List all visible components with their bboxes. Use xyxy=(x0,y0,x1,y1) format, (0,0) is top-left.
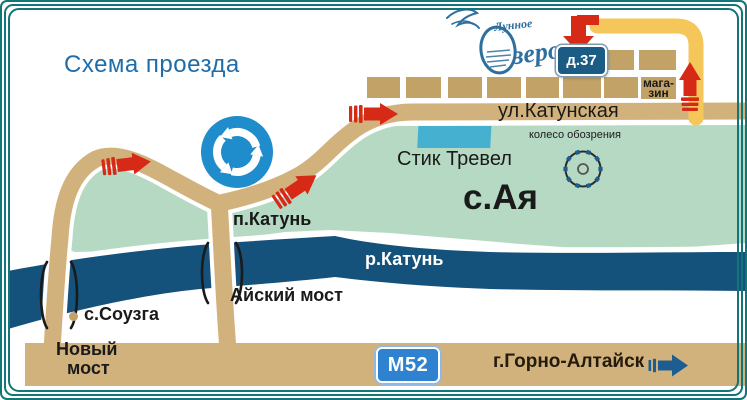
street-label: ул.Катунская xyxy=(498,100,619,123)
shop-label-line2: зин xyxy=(648,86,669,100)
m52-sign-text: М52 xyxy=(376,347,440,383)
logo-lake-lines xyxy=(486,50,511,67)
map-title: Схема проезда xyxy=(64,51,240,79)
city-label: г.Горно-Алтайск xyxy=(493,351,644,373)
stik-travel-label: Стик Тревел xyxy=(397,148,512,171)
logo-bird-icon xyxy=(447,10,479,28)
house-37-sign: д.37 xyxy=(556,45,607,76)
route-map: Схема проезда Лунное зеро д.37 ул.Катунс… xyxy=(0,0,747,400)
roundabout-sign-icon xyxy=(201,116,273,188)
new-bridge-label-line2: мост xyxy=(67,358,110,379)
aysky-bridge-label: Айский мост xyxy=(230,285,343,306)
souzga-dot xyxy=(69,312,78,321)
village-aya-label: с.Ая xyxy=(463,178,538,218)
road-aysky-most xyxy=(219,199,228,350)
m52-sign: М52 xyxy=(374,345,442,385)
settlement-katun-label: п.Катунь xyxy=(233,209,311,230)
ferris-wheel-label: колесо обозрения xyxy=(529,129,621,141)
river-katun-label: р.Катунь xyxy=(365,249,443,270)
shop-label: мага- зин xyxy=(640,78,677,98)
green-area-aya xyxy=(57,125,747,252)
souzga-label: с.Соузга xyxy=(84,304,159,325)
new-bridge-label-line1: Новый xyxy=(56,339,118,360)
stik-travel-building xyxy=(417,126,491,148)
